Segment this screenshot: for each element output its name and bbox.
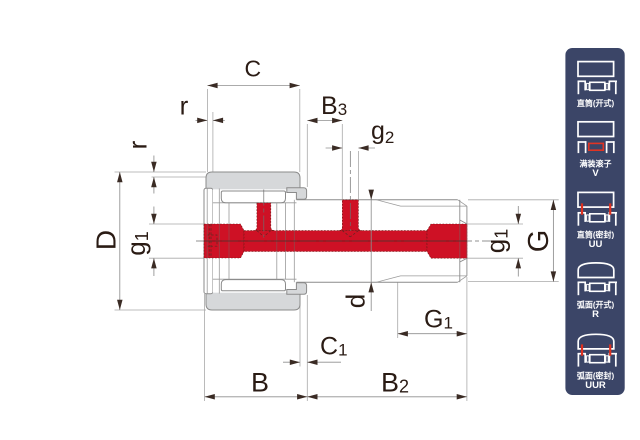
svg-text:G: G (523, 230, 555, 253)
svg-text:直筒(密封): 直筒(密封) (577, 230, 615, 240)
svg-text:UU: UU (589, 239, 603, 250)
svg-text:UUR: UUR (585, 380, 606, 391)
svg-text:r: r (123, 140, 153, 149)
svg-text:B: B (251, 368, 269, 398)
svg-text:r: r (180, 91, 189, 121)
svg-text:C: C (244, 55, 261, 81)
svg-text:直筒(开式): 直筒(开式) (577, 98, 615, 108)
svg-text:R: R (592, 309, 599, 320)
svg-text:V: V (592, 168, 599, 179)
svg-text:D: D (91, 230, 122, 250)
svg-text:弧面(开式): 弧面(开式) (577, 300, 615, 310)
svg-text:弧面(密封): 弧面(密封) (577, 371, 615, 381)
svg-text:d: d (341, 294, 371, 308)
svg-text:满装滚子: 满装滚子 (580, 158, 612, 168)
